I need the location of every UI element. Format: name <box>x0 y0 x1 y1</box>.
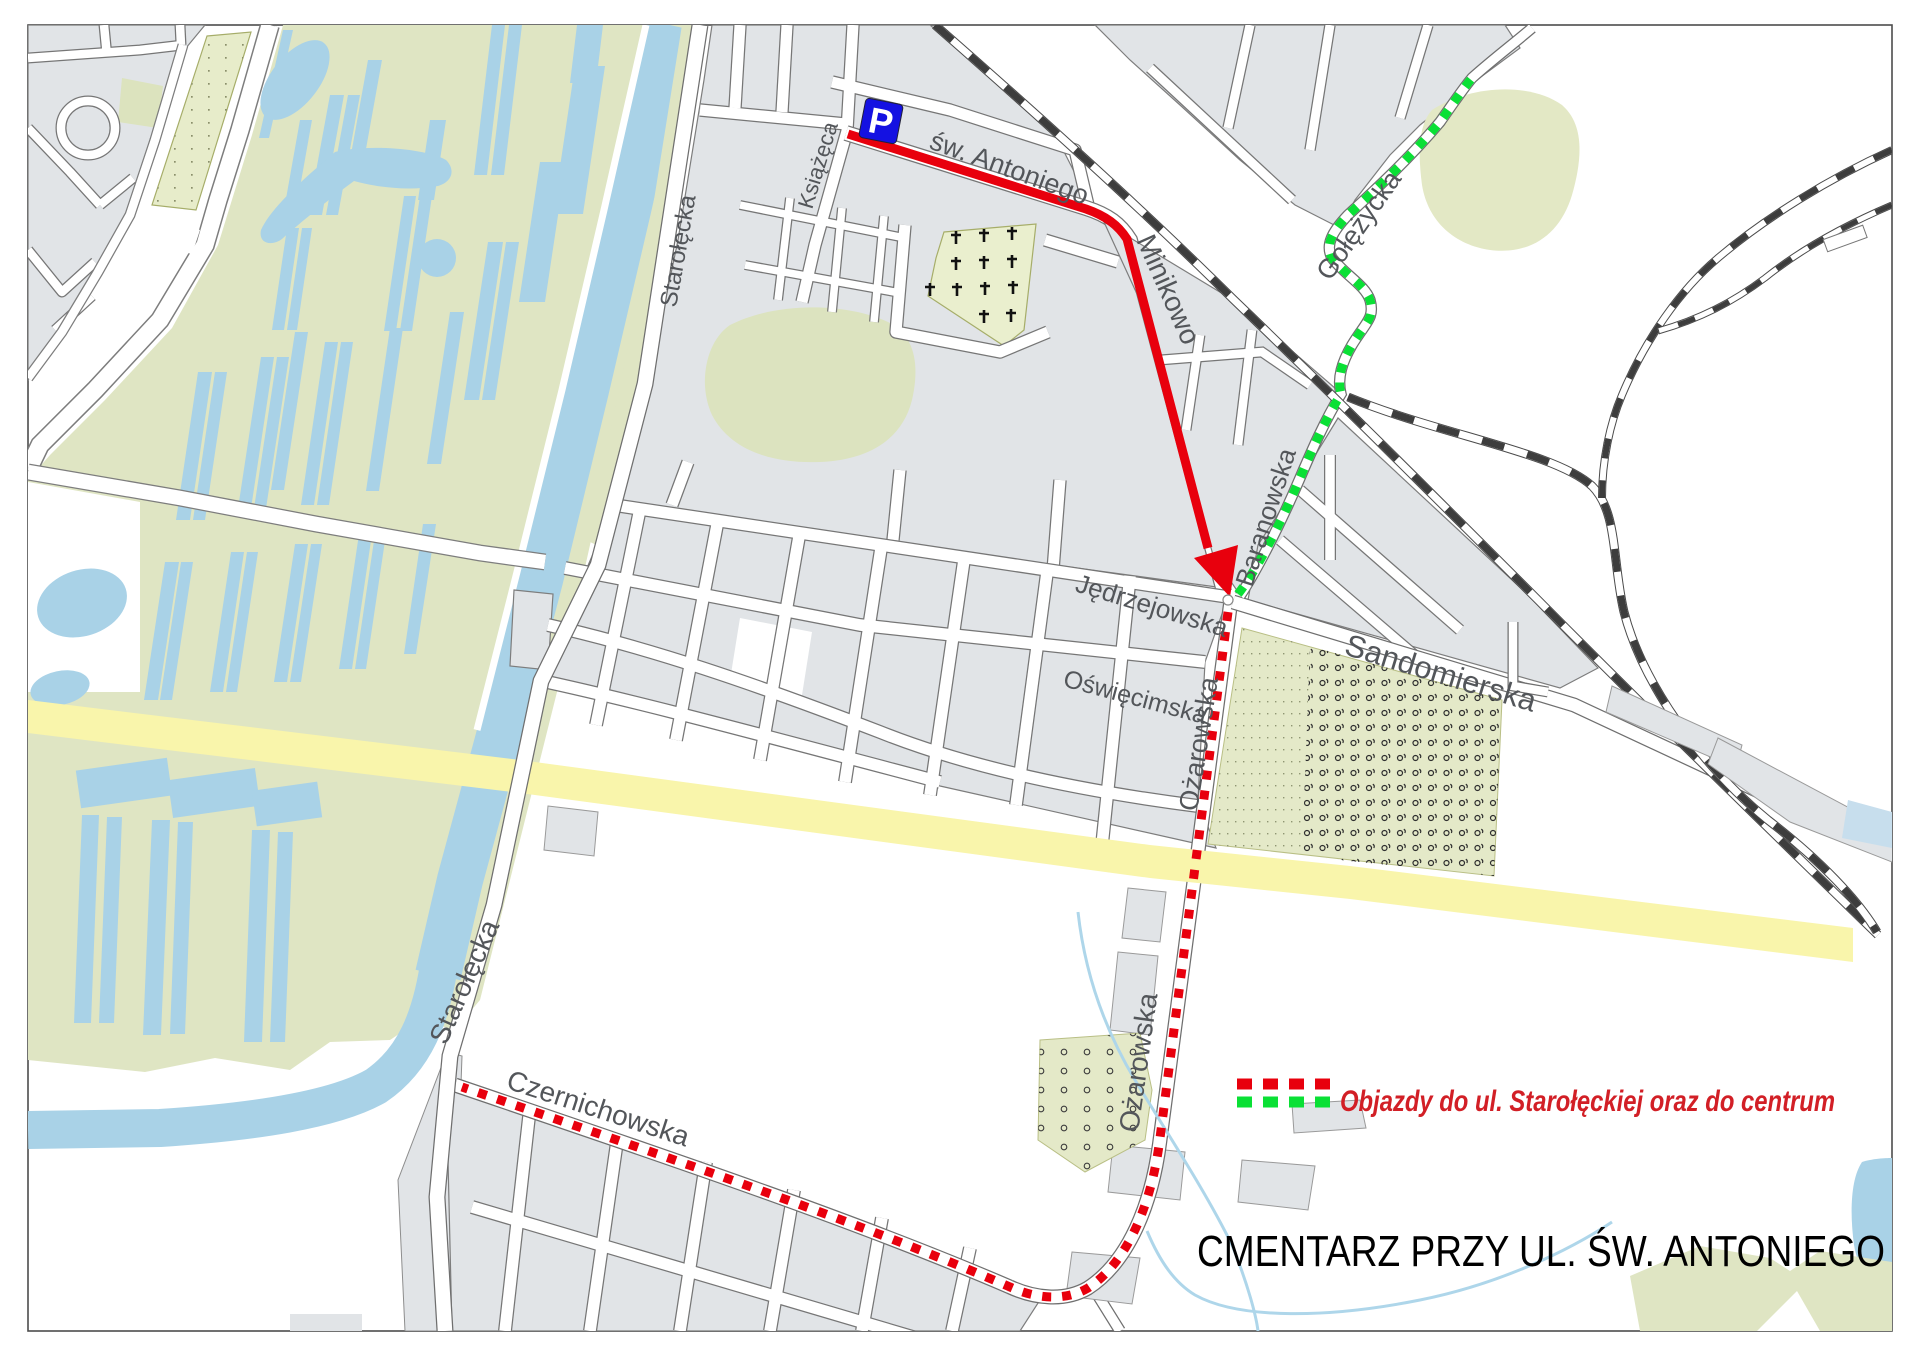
svg-text:CMENTARZ PRZY UL. ŚW. ANTONIEG: CMENTARZ PRZY UL. ŚW. ANTONIEGO <box>1197 1225 1885 1276</box>
svg-text:Objazdy do ul. Starołęckiej or: Objazdy do ul. Starołęckiej oraz do cent… <box>1340 1085 1835 1118</box>
